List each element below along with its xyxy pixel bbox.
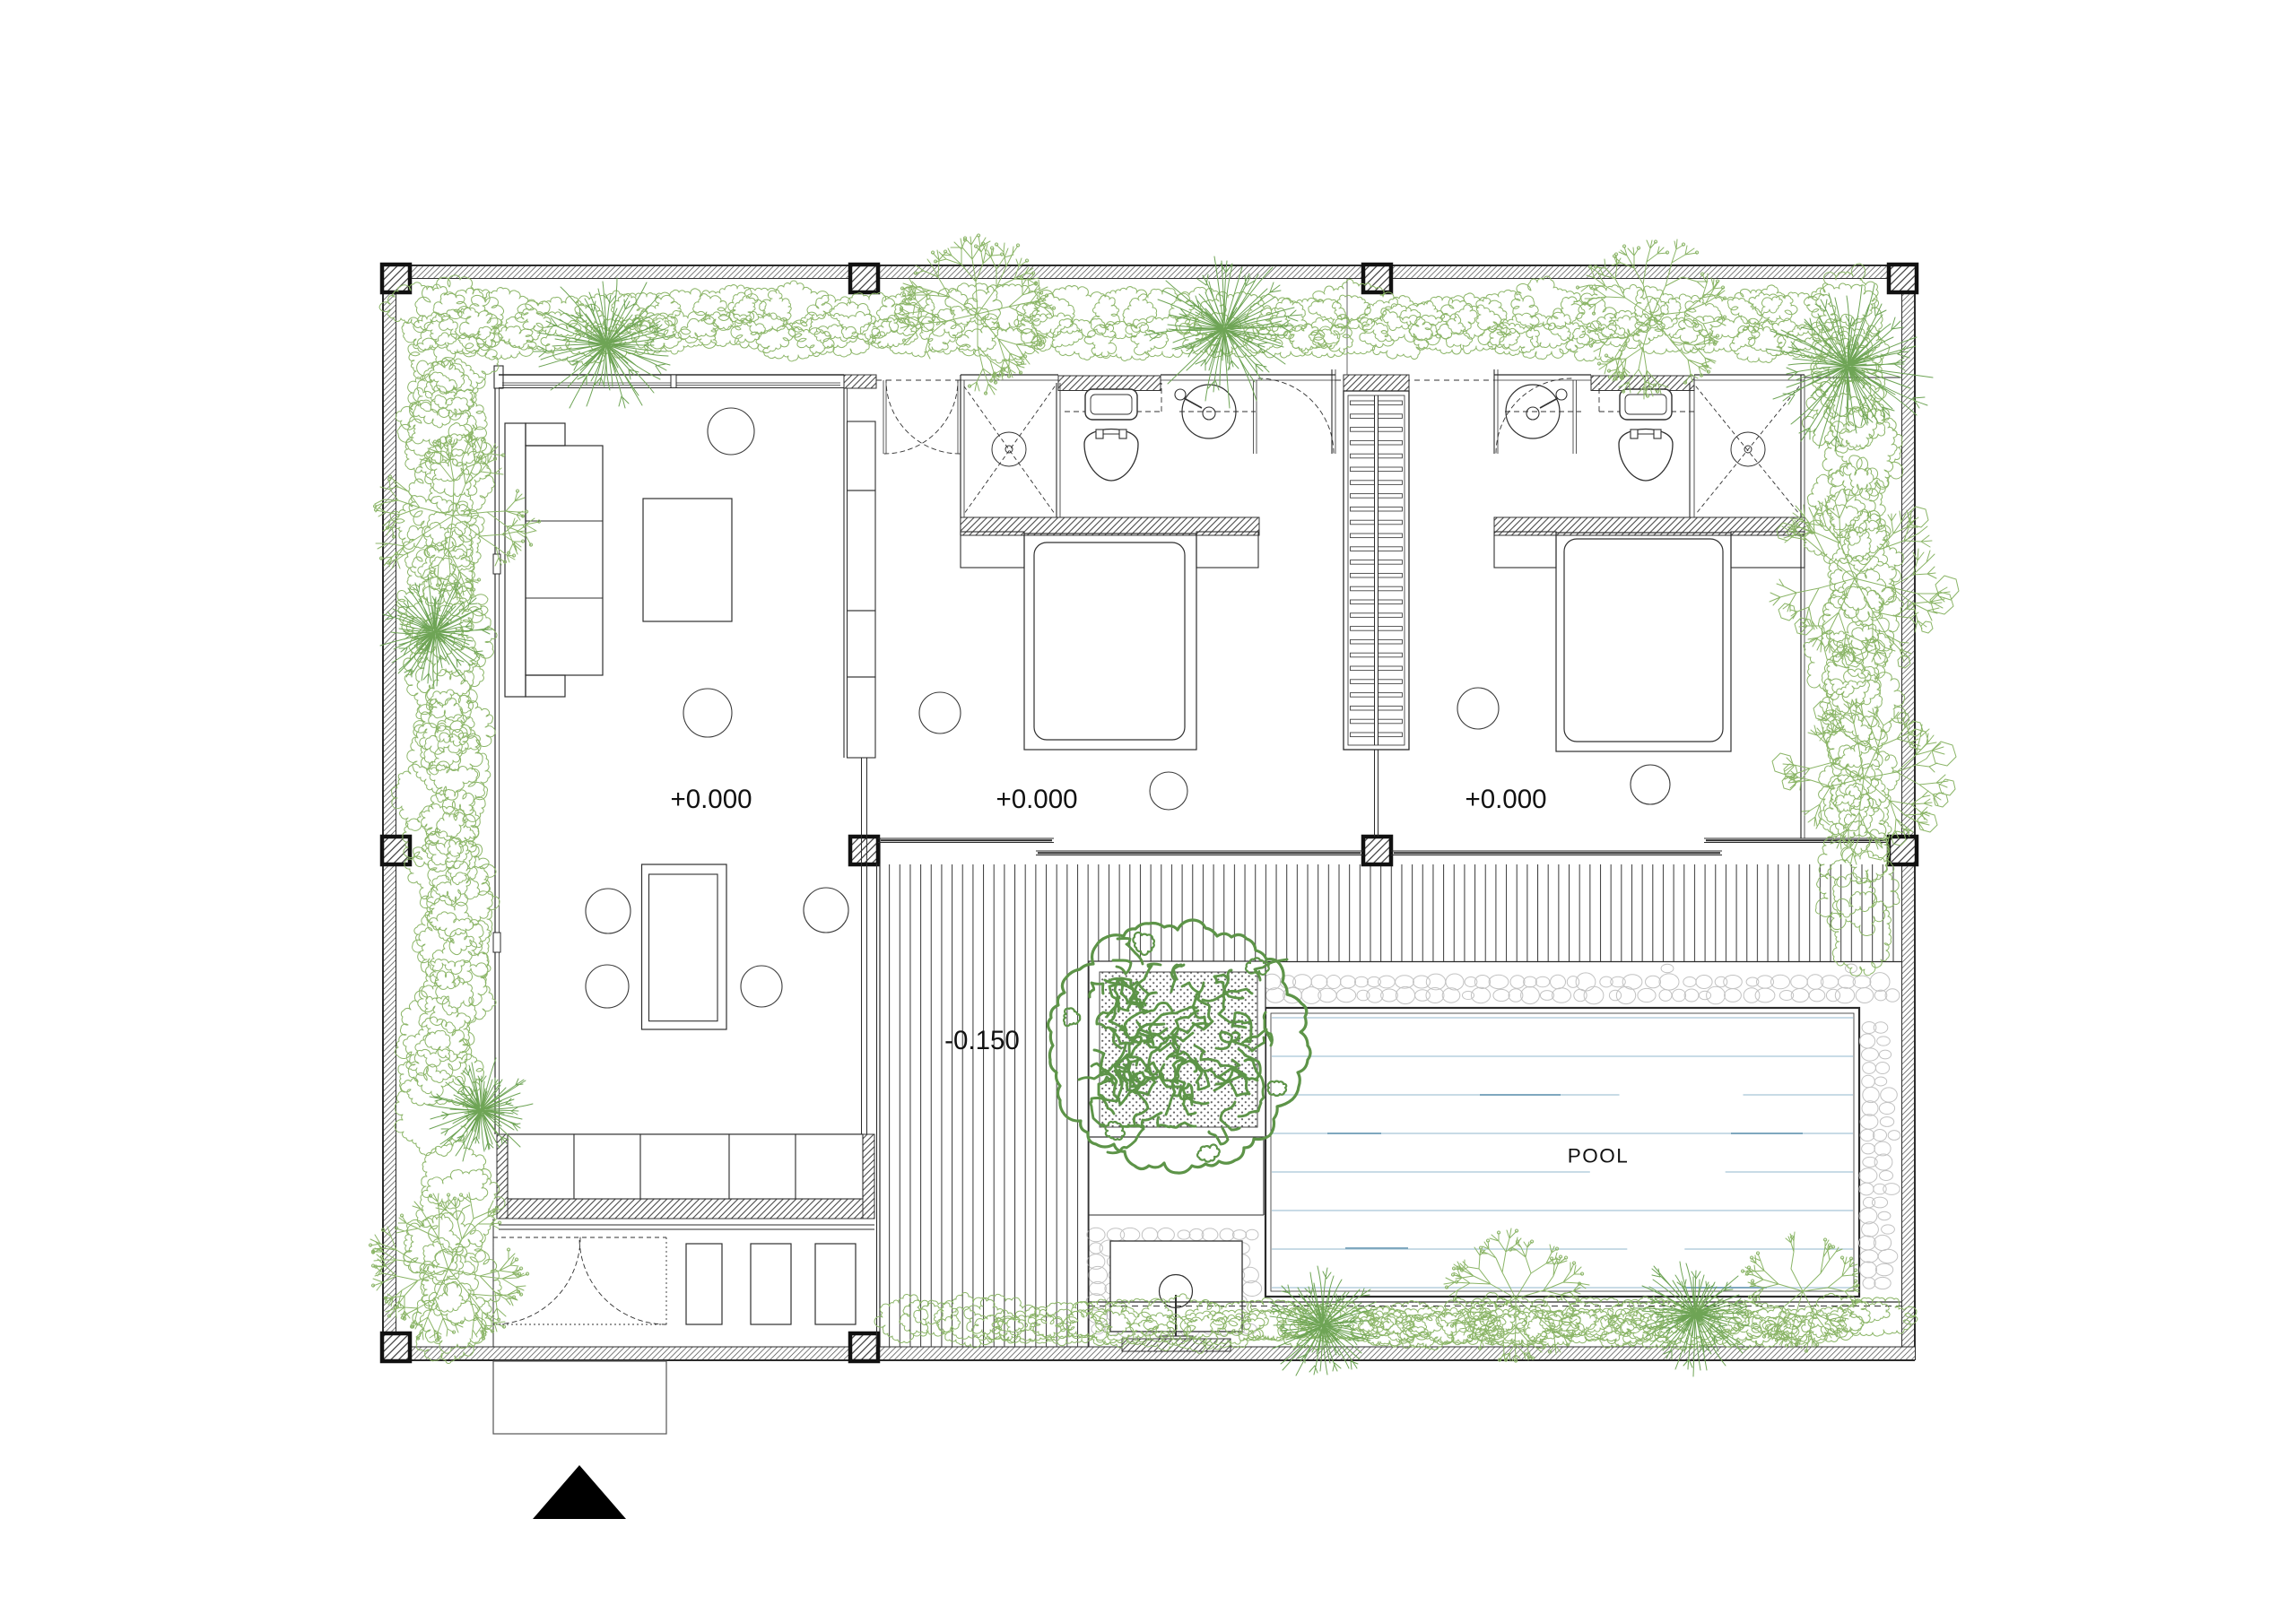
svg-text:POOL: POOL: [1568, 1145, 1630, 1167]
svg-text:-0.150: -0.150: [944, 1026, 1020, 1055]
svg-text:+0.000: +0.000: [670, 785, 752, 814]
svg-text:+0.000: +0.000: [996, 785, 1077, 814]
svg-text:+0.000: +0.000: [1465, 785, 1546, 814]
